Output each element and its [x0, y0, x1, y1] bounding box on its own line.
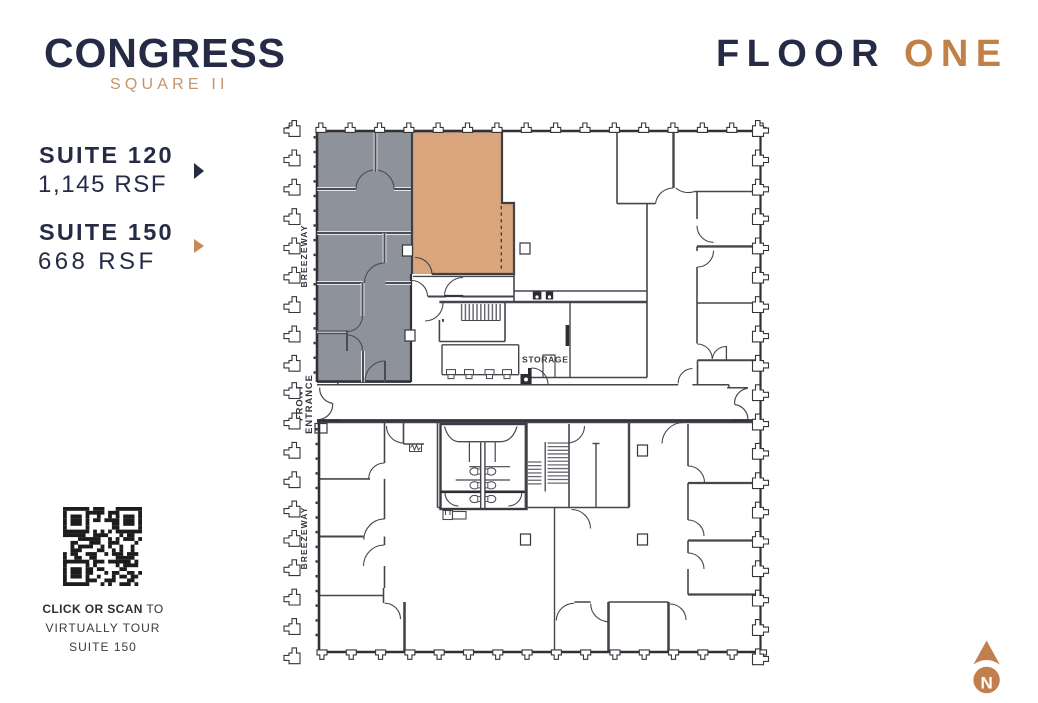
svg-text:N: N	[980, 674, 992, 693]
svg-text:ENTRANCE: ENTRANCE	[304, 374, 314, 434]
svg-text:STORAGE: STORAGE	[522, 355, 569, 365]
